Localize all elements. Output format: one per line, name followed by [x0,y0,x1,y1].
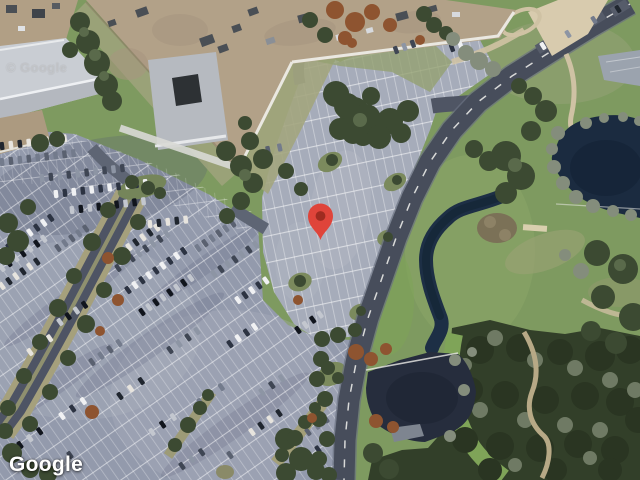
map-canvas[interactable]: © Google Google [0,0,640,480]
satellite-layer [0,0,640,480]
copyright-watermark: © Google [6,60,67,75]
pin-dot [316,211,326,221]
google-logo[interactable]: Google [9,453,83,477]
